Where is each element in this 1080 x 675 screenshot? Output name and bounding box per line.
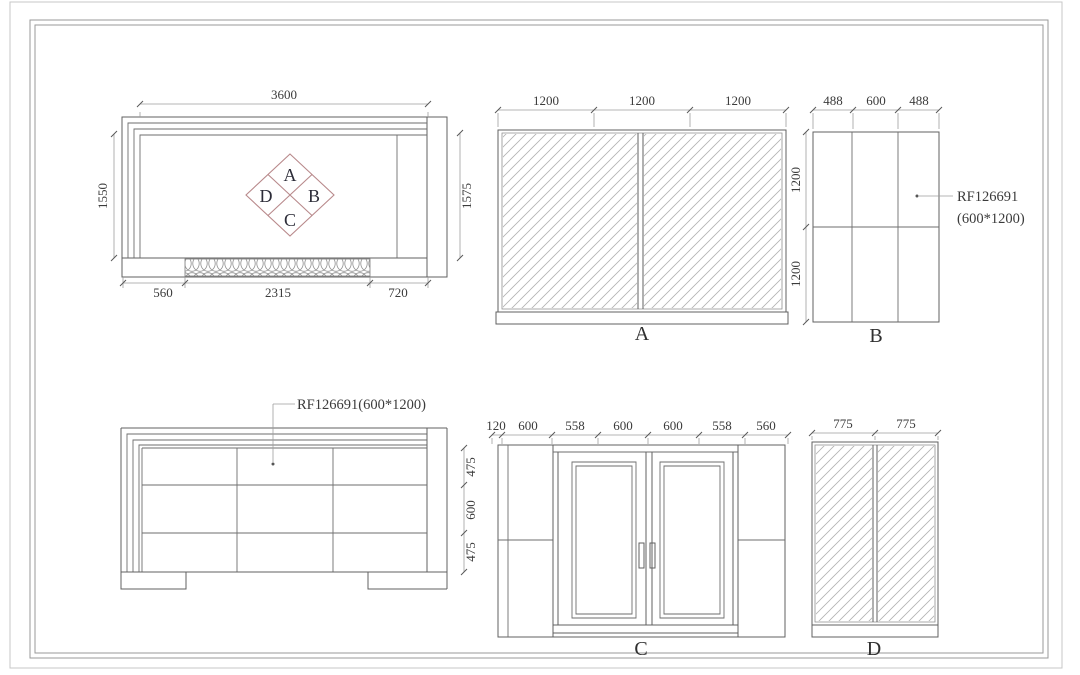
drawing-sheet: A B C D 3600 1550 1575 560 2315 720 [0,0,1080,675]
c-dim-2: 600 [518,418,538,433]
a-dim-2: 1200 [629,93,655,108]
elevation-b-outline [813,132,939,322]
plan-view: A B C D 3600 1550 1575 560 2315 720 [95,87,474,300]
c-dim-1: 120 [486,418,506,433]
plan-dim-top: 3600 [271,87,297,102]
diamond-letter-c: C [284,210,296,230]
plan-dim-bottom-2: 2315 [265,285,291,300]
b-dim-top-2: 600 [866,93,886,108]
cad-drawing: A B C D 3600 1550 1575 560 2315 720 [0,0,1080,675]
plan-dim-bottom-1: 560 [153,285,173,300]
plan-dim-bottom-3: 720 [388,285,408,300]
pebble-band [185,259,370,276]
c-dim-7: 560 [756,418,776,433]
glass-panel-left [503,134,637,308]
elevation-b: 488 600 488 1200 1200 RF126691 (600*1200… [788,93,1025,347]
b-dim-top-1: 488 [823,93,843,108]
elevation-front: RF126691(600*1200) 475 600 475 [121,397,478,589]
a-dim-3: 1200 [725,93,751,108]
part-code-line1: RF126691 [957,189,1018,205]
c-dim-3: 558 [565,418,585,433]
c-dim-4: 600 [613,418,633,433]
view-label-a: A [635,323,650,345]
elevation-front-dimensions: 475 600 475 [461,445,478,575]
glass-panel-right [644,134,781,308]
view-label-c: C [634,638,647,660]
leader-dot [916,195,919,198]
elevation-c-dimensions: 120 600 558 600 600 558 560 [486,418,791,444]
b-dim-left-2: 1200 [788,261,803,287]
plan-dim-right: 1575 [459,183,474,209]
diamond-letter-d: D [260,186,273,206]
view-label-b: B [869,325,882,347]
layout-diamond: A B C D [246,154,334,236]
diamond-letter-a: A [284,165,297,185]
elevation-front-outline [121,428,447,589]
part-code-callout-b: RF126691 (600*1200) [916,189,1025,227]
elevation-d-dimensions: 775 775 [809,416,941,440]
d-dim-2: 775 [896,416,916,431]
view-label-d: D [867,638,881,660]
glass-panel-left [816,446,872,621]
front-dim-3: 475 [463,542,478,562]
elevation-b-dimensions: 488 600 488 1200 1200 [788,93,942,325]
c-dim-6: 558 [712,418,732,433]
diamond-letter-b: B [308,186,320,206]
part-code-callout-front: RF126691(600*1200) [272,397,427,466]
part-code-note: RF126691(600*1200) [297,397,426,413]
b-dim-top-3: 488 [909,93,929,108]
glass-panel-right [878,446,934,621]
leader-dot [272,463,275,466]
c-dim-5: 600 [663,418,683,433]
front-dim-2: 600 [463,500,478,520]
plan-dim-left: 1550 [95,183,110,209]
elevation-a-dimensions: 1200 1200 1200 [495,93,789,127]
elevation-d: 775 775 D [809,416,941,660]
d-dim-1: 775 [833,416,853,431]
plan-outline [122,117,447,277]
front-dim-1: 475 [463,457,478,477]
elevation-c-outline [498,445,785,637]
elevation-a: 1200 1200 1200 A [495,93,789,345]
door-handle-left [639,543,644,568]
part-code-line2: (600*1200) [957,211,1025,227]
a-dim-1: 1200 [533,93,559,108]
b-dim-left-1: 1200 [788,167,803,193]
elevation-c: 120 600 558 600 600 558 560 C [486,418,791,660]
